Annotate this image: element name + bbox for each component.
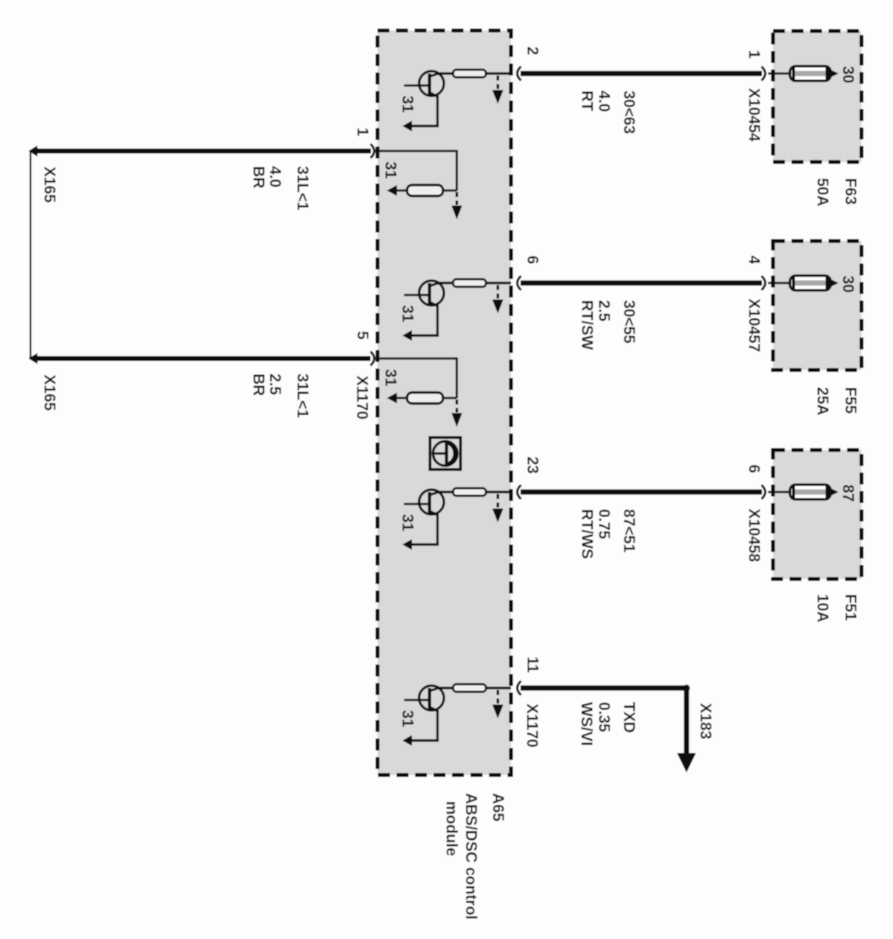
svg-text:A65: A65 (489, 793, 506, 822)
svg-text:X165: X165 (41, 167, 58, 204)
svg-text:30<63: 30<63 (620, 91, 637, 135)
svg-text:F55: F55 (842, 387, 859, 414)
svg-text:31: 31 (399, 710, 416, 728)
svg-text:31L<1: 31L<1 (294, 166, 311, 211)
svg-text:10A: 10A (814, 594, 831, 622)
svg-text:RT: RT (578, 91, 595, 112)
svg-text:4: 4 (745, 256, 762, 265)
svg-text:31: 31 (382, 162, 399, 180)
svg-text:ABS/DSC control: ABS/DSC control (462, 793, 479, 920)
svg-text:6: 6 (745, 465, 762, 474)
svg-text:F51: F51 (842, 594, 859, 621)
svg-text:BR: BR (250, 166, 267, 188)
svg-text:5: 5 (354, 331, 371, 340)
svg-text:31: 31 (399, 305, 416, 323)
svg-text:0.75: 0.75 (595, 509, 612, 540)
svg-text:2.5: 2.5 (595, 300, 612, 322)
svg-text:31L<1: 31L<1 (294, 374, 311, 419)
svg-text:25A: 25A (814, 387, 831, 415)
svg-text:31: 31 (399, 96, 416, 114)
svg-text:31: 31 (399, 514, 416, 532)
svg-text:87<51: 87<51 (620, 509, 637, 553)
svg-text:4.0: 4.0 (595, 91, 612, 113)
svg-text:X10457: X10457 (745, 299, 762, 352)
svg-text:11: 11 (524, 657, 541, 674)
svg-text:30: 30 (839, 276, 856, 293)
svg-text:X10454: X10454 (745, 88, 762, 142)
svg-text:30<55: 30<55 (620, 300, 637, 344)
svg-text:87: 87 (839, 485, 856, 502)
svg-text:X165: X165 (41, 375, 58, 412)
svg-text:module: module (443, 801, 460, 856)
svg-text:RT/SW: RT/SW (578, 300, 595, 350)
svg-text:31: 31 (382, 369, 399, 387)
svg-text:WS/VI: WS/VI (578, 702, 595, 746)
svg-text:1: 1 (745, 50, 762, 59)
svg-text:X1170: X1170 (353, 376, 370, 420)
svg-text:RT/WS: RT/WS (578, 509, 595, 559)
svg-text:X10458: X10458 (745, 509, 762, 563)
svg-text:50A: 50A (814, 178, 831, 206)
svg-text:6: 6 (524, 256, 541, 265)
svg-text:TXD: TXD (620, 702, 637, 733)
svg-text:F63: F63 (842, 178, 859, 205)
svg-text:X183: X183 (697, 703, 714, 740)
svg-text:30: 30 (839, 66, 856, 83)
svg-text:4.0: 4.0 (266, 166, 283, 188)
svg-text:2.5: 2.5 (266, 374, 283, 396)
svg-text:X1170: X1170 (523, 704, 540, 748)
svg-text:2: 2 (524, 47, 541, 56)
svg-text:1: 1 (354, 128, 371, 137)
svg-text:BR: BR (250, 374, 267, 396)
svg-text:0.35: 0.35 (595, 702, 612, 733)
svg-text:23: 23 (524, 457, 541, 475)
